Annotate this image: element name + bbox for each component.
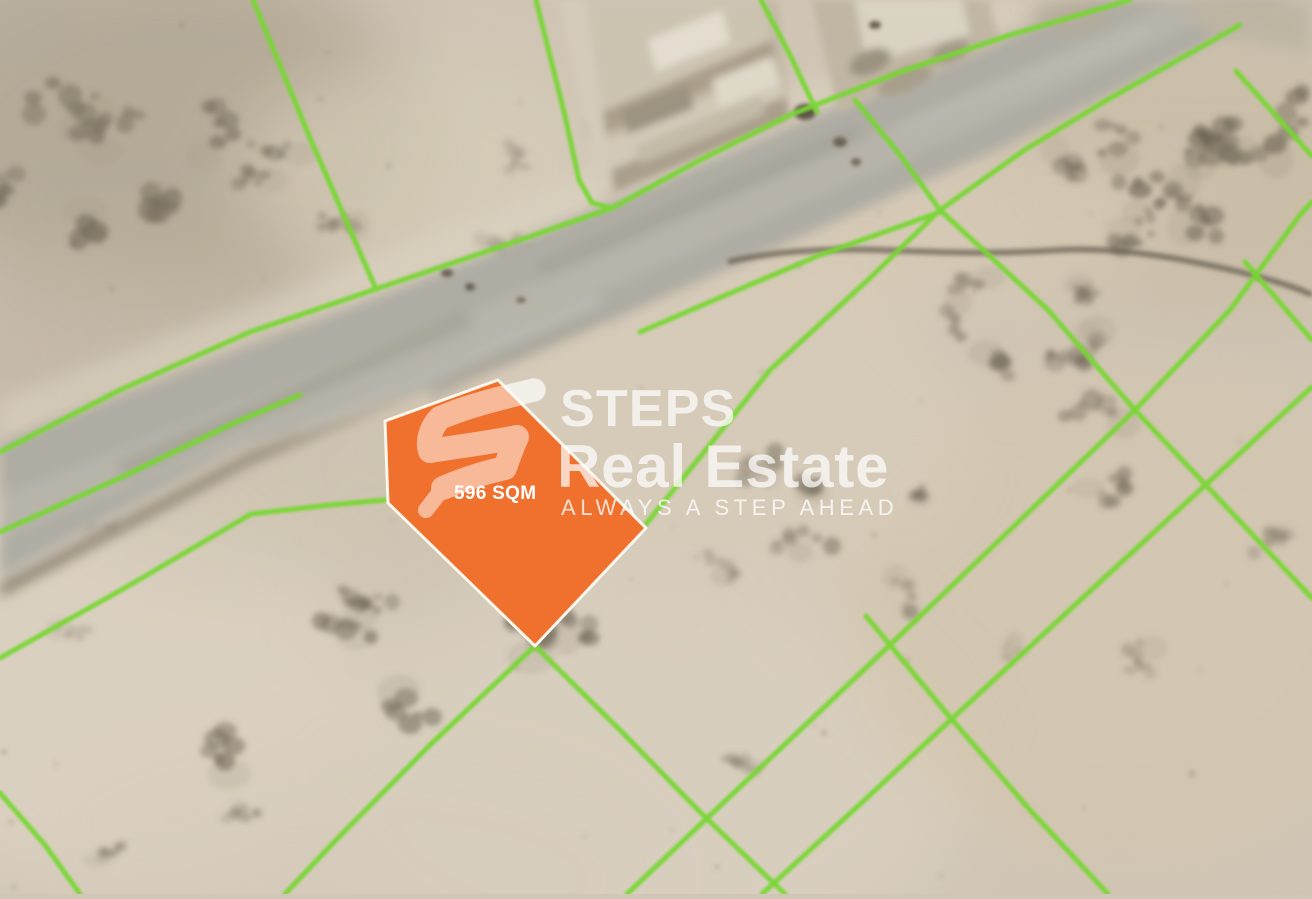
svg-text:STEPS: STEPS (560, 380, 737, 438)
svg-text:ALWAYS A STEP AHEAD: ALWAYS A STEP AHEAD (561, 495, 898, 520)
svg-text:Real Estate: Real Estate (557, 433, 889, 500)
svg-text:596 SQM: 596 SQM (454, 483, 536, 504)
